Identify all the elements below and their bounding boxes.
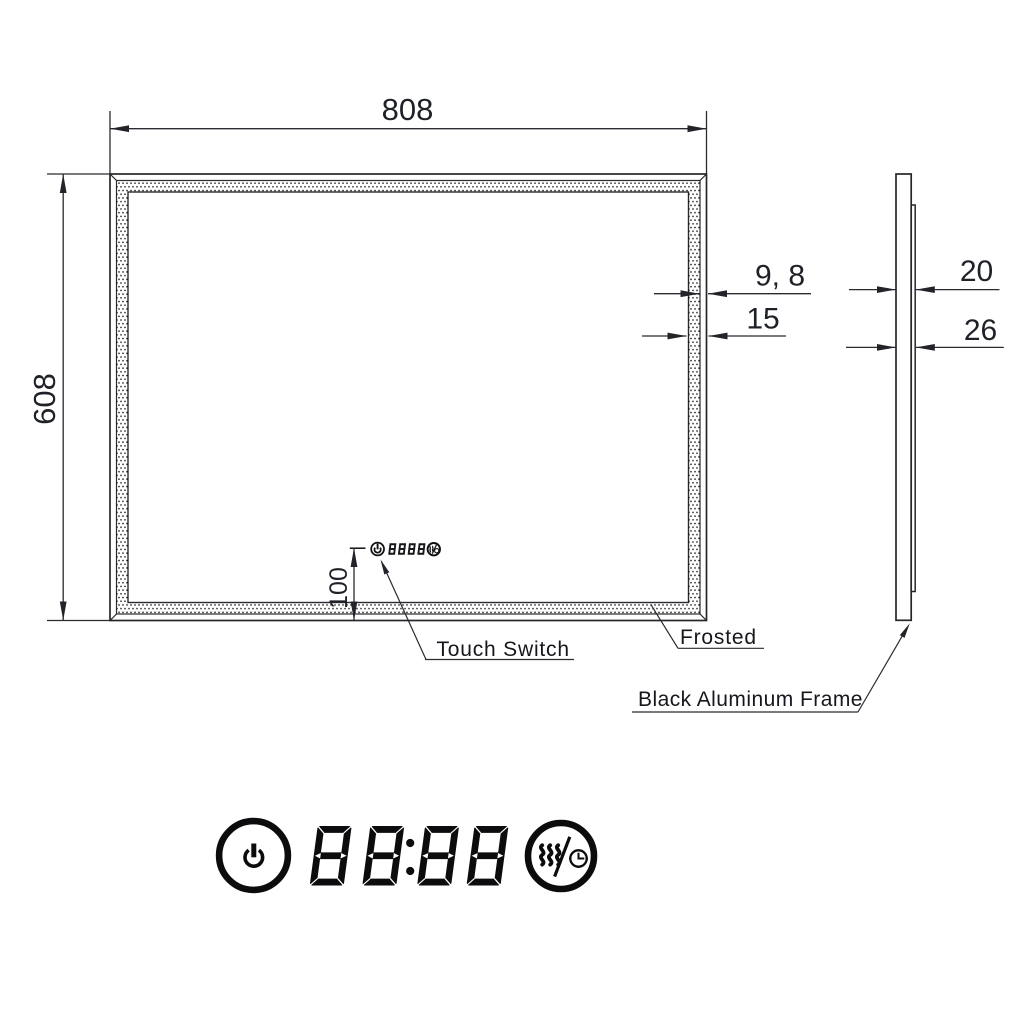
svg-text:26: 26: [964, 314, 997, 347]
svg-text:608: 608: [27, 373, 62, 425]
svg-text:Black Aluminum Frame: Black Aluminum Frame: [638, 688, 863, 711]
svg-text:20: 20: [960, 255, 993, 288]
svg-text:100: 100: [325, 567, 353, 609]
svg-text:9, 8: 9, 8: [755, 260, 805, 293]
svg-text:Touch Switch: Touch Switch: [437, 638, 570, 661]
svg-text:Frosted: Frosted: [680, 626, 757, 649]
svg-text:808: 808: [382, 92, 434, 127]
svg-text:15: 15: [746, 303, 779, 336]
